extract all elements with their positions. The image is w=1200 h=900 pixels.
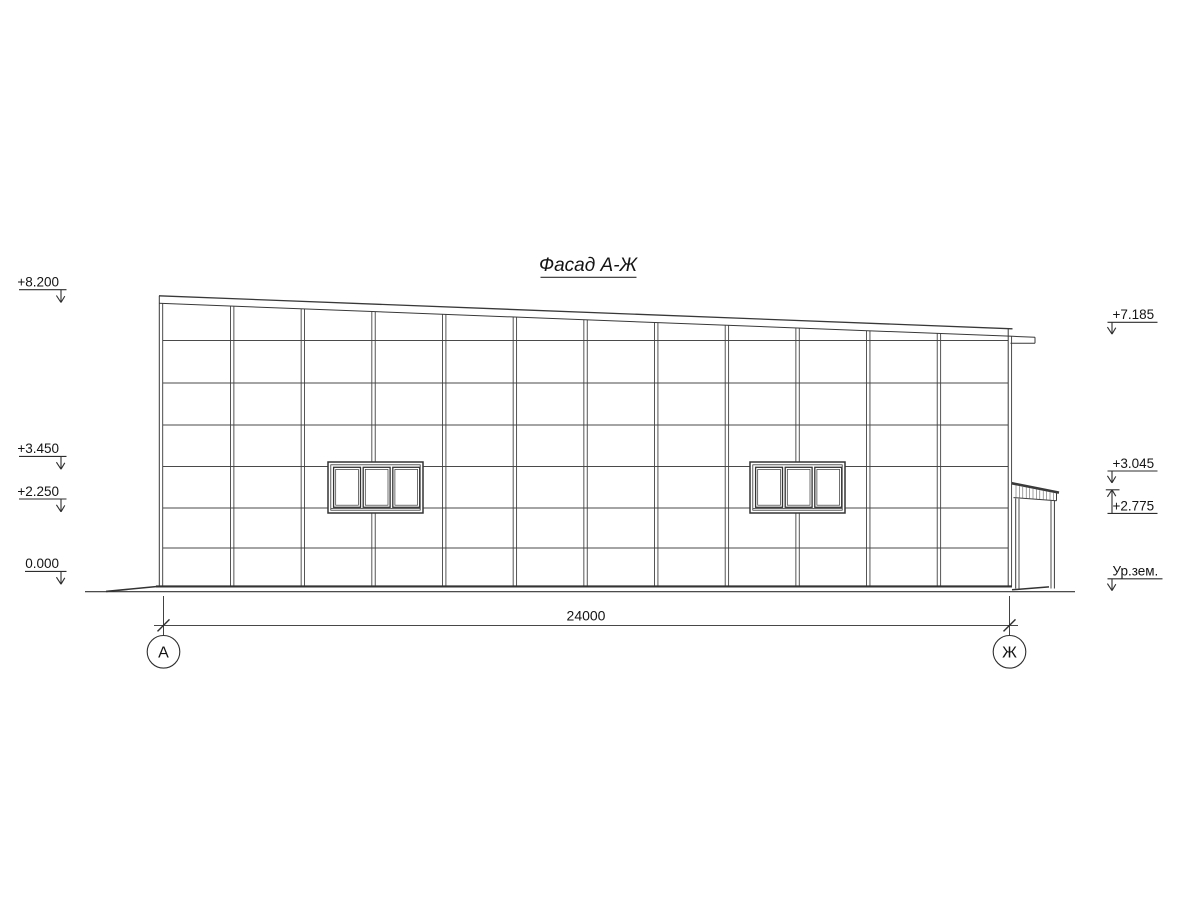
elevation-mark-plus2775: +2.775 — [1106, 490, 1158, 514]
elevation-label: +2.250 — [17, 484, 59, 499]
facade-grid-horizontals — [163, 341, 1009, 549]
roof-overhang — [1011, 336, 1036, 343]
facade-mullions — [230, 306, 940, 586]
axis-bubble-a: А — [147, 636, 180, 669]
facade-outline — [159, 296, 1035, 587]
elevation-label: +3.450 — [17, 441, 59, 456]
window-pane — [785, 467, 812, 507]
elevation-mark-plus2250: +2.250 — [17, 484, 66, 512]
annex-roof-top — [1012, 483, 1060, 492]
facade-drawing-svg: Фасад А-Ж — [0, 0, 1200, 900]
elevation-label: +3.045 — [1113, 456, 1155, 471]
roof-top-line — [159, 296, 1013, 329]
ground-lines — [85, 586, 1075, 591]
dimension-label: 24000 — [567, 608, 606, 624]
left-grade-wedge — [106, 587, 157, 592]
axis-label-zh: Ж — [1002, 644, 1017, 661]
window-pane — [815, 467, 842, 507]
elevation-label: +8.200 — [17, 275, 59, 290]
axis-bubble-zh: Ж — [993, 636, 1026, 669]
window-pane — [756, 467, 783, 507]
window-pane — [363, 467, 390, 507]
elevation-mark-plus3450: +3.450 — [17, 441, 66, 469]
elevation-mark-zero: 0.000 — [25, 556, 67, 584]
elevation-label: +7.185 — [1113, 307, 1155, 322]
drawing-sheet: Фасад А-Ж — [0, 0, 1200, 900]
window-pane — [334, 467, 361, 507]
axis-label-a: А — [158, 644, 169, 661]
drawing-title: Фасад А-Ж — [539, 255, 639, 277]
roof-lower-line — [159, 303, 1013, 336]
window-pane — [393, 467, 420, 507]
elevation-mark-plus3045: +3.045 — [1107, 456, 1157, 483]
elevation-mark-plus7185: +7.185 — [1107, 307, 1157, 334]
elevation-label: Ур.зем. — [1113, 564, 1159, 579]
right-grade-wedge — [1012, 587, 1049, 590]
dimension-line-24000: 24000 — [154, 596, 1018, 635]
elevation-label: +2.775 — [1113, 498, 1155, 513]
drawing-title-text: Фасад А-Ж — [539, 255, 639, 276]
facade-windows — [328, 462, 845, 513]
annex — [1012, 483, 1060, 588]
elevation-mark-plus8200: +8.200 — [17, 275, 66, 303]
elevation-label: 0.000 — [25, 556, 59, 571]
elevation-mark-ground-level: Ур.зем. — [1107, 564, 1162, 591]
